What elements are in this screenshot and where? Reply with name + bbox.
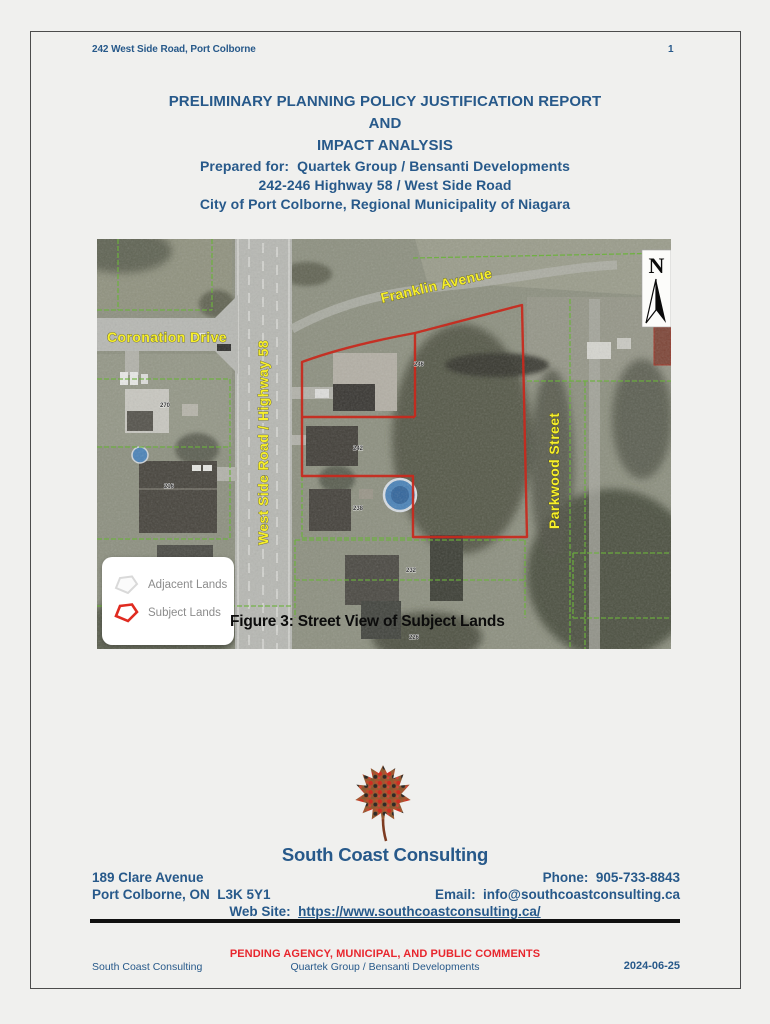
house-number: 226 bbox=[409, 635, 420, 641]
company-address-line2: Port Colborne, ON L3K 5Y1 bbox=[92, 887, 271, 902]
prepared-for-line: Prepared for: Quartek Group / Bensanti D… bbox=[0, 158, 770, 174]
adjacent-lands-icon bbox=[114, 575, 140, 595]
website-link[interactable]: https://www.southcoastconsulting.ca/ bbox=[298, 904, 541, 919]
street-label-coronation: Coronation Drive bbox=[107, 329, 227, 345]
property-address-line: 242-246 Highway 58 / West Side Road bbox=[0, 177, 770, 193]
figure-caption: Figure 3: Street View of Subject Lands bbox=[230, 613, 505, 631]
map-legend: Adjacent Lands Subject Lands bbox=[102, 557, 234, 645]
north-label: N bbox=[649, 253, 665, 278]
company-website-line: Web Site: https://www.southcoastconsulti… bbox=[0, 904, 770, 919]
company-logo-maple-leaf bbox=[348, 762, 418, 842]
footer-status-notice: PENDING AGENCY, MUNICIPAL, AND PUBLIC CO… bbox=[0, 948, 770, 960]
header-running-title: 242 West Side Road, Port Colborne bbox=[92, 44, 256, 55]
leaf-stem bbox=[383, 819, 386, 841]
house-number: 238 bbox=[353, 506, 364, 512]
legend-item-adjacent: Adjacent Lands bbox=[114, 571, 234, 599]
street-label-parkwood: Parkwood Street bbox=[546, 413, 562, 529]
house-number: 242 bbox=[353, 446, 364, 452]
house-number: 232 bbox=[406, 568, 417, 574]
subject-lands-icon bbox=[114, 603, 140, 623]
street-label-west-side: West Side Road / Highway 58 bbox=[255, 340, 271, 545]
legend-label-adjacent: Adjacent Lands bbox=[148, 579, 227, 591]
website-label: Web Site: bbox=[229, 904, 298, 919]
report-title-line1: PRELIMINARY PLANNING POLICY JUSTIFICATIO… bbox=[0, 93, 770, 110]
house-number: 216 bbox=[164, 484, 175, 490]
company-name: South Coast Consulting bbox=[0, 844, 770, 866]
municipality-line: City of Port Colborne, Regional Municipa… bbox=[0, 196, 770, 212]
header-page-number: 1 bbox=[668, 44, 674, 55]
house-number: 246 bbox=[414, 362, 425, 368]
report-title-line3: IMPACT ANALYSIS bbox=[0, 137, 770, 154]
horizontal-rule bbox=[90, 919, 680, 923]
figure-aerial-map: 270 216 246 242 238 232 226 Coronation D… bbox=[97, 239, 671, 649]
footer-date: 2024-06-25 bbox=[624, 960, 680, 972]
company-address-line1: 189 Clare Avenue bbox=[92, 870, 204, 885]
document-page: 242 West Side Road, Port Colborne 1 PREL… bbox=[0, 0, 770, 1024]
legend-label-subject: Subject Lands bbox=[148, 607, 221, 619]
house-number: 270 bbox=[160, 403, 171, 409]
company-email[interactable]: Email: info@southcoastconsulting.ca bbox=[435, 887, 680, 902]
maple-leaf bbox=[355, 765, 410, 821]
legend-item-subject: Subject Lands bbox=[114, 599, 234, 627]
north-arrow: N bbox=[642, 250, 671, 327]
report-title-line2: AND bbox=[0, 115, 770, 132]
company-phone: Phone: 905-733-8843 bbox=[543, 870, 680, 885]
